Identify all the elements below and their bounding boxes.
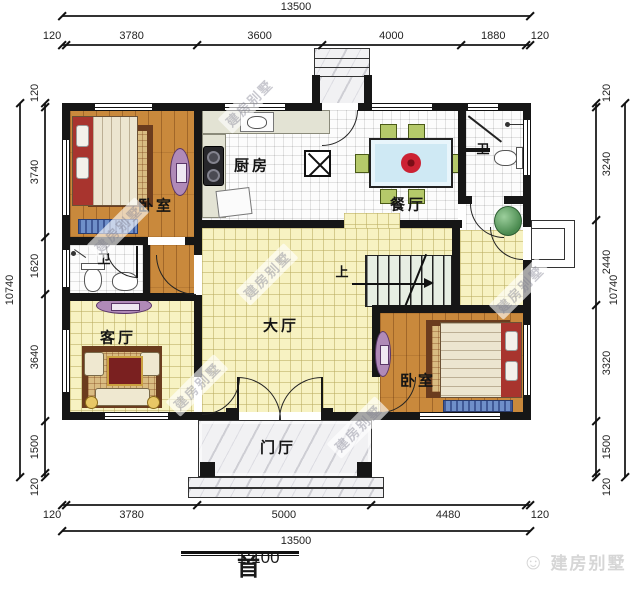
wall — [194, 295, 202, 377]
window — [523, 120, 531, 175]
coffee-table — [107, 356, 143, 386]
stove — [203, 146, 224, 186]
back-porch-step-line — [314, 58, 370, 59]
dimension-label: 120 — [29, 84, 41, 102]
dimension-label: 120 — [43, 509, 61, 521]
dimension-label: 1880 — [481, 30, 505, 42]
window — [372, 103, 432, 111]
dining-chair — [408, 124, 425, 139]
fridge — [215, 187, 252, 218]
dimension-label: 120 — [601, 478, 613, 496]
dimension-label: 10740 — [4, 275, 16, 306]
dimension-label: 3320 — [601, 351, 613, 375]
stairs-up-label: 上 — [335, 262, 348, 281]
window — [62, 250, 70, 287]
wall — [62, 103, 70, 140]
bath-l-door-leaf — [136, 246, 138, 278]
dimension-label: 3640 — [29, 345, 41, 369]
room-label-hall: 大厅 — [263, 315, 299, 336]
dimension-label: 13500 — [281, 1, 312, 13]
wall — [152, 103, 225, 111]
dimension-label: 10740 — [608, 275, 620, 306]
dimension-label: 3780 — [119, 30, 143, 42]
dimension-line — [62, 530, 530, 532]
wall — [458, 196, 472, 204]
window — [62, 330, 70, 392]
brand-logo: ☺ 建房别墅 — [522, 549, 626, 574]
dining-chair — [380, 124, 397, 139]
bedroom-br-bench — [443, 400, 513, 412]
wall — [185, 237, 194, 245]
entry-door-left-leaf — [237, 377, 239, 420]
burner — [207, 151, 220, 164]
flue-shaft — [304, 150, 331, 177]
foyer-column — [200, 462, 215, 477]
dimension-label: 5000 — [272, 509, 296, 521]
window — [420, 412, 500, 420]
room-label-living: 客厅 — [100, 327, 136, 348]
dimension-label: 13500 — [281, 535, 312, 547]
wall — [400, 220, 462, 228]
dining-chair — [355, 154, 369, 173]
wall — [523, 395, 531, 420]
sink-basin — [247, 116, 267, 129]
brand-logo-text: 建房别墅 — [550, 549, 626, 574]
title-underline — [181, 551, 299, 556]
bedroom-tl-bed — [72, 116, 138, 206]
wall — [523, 103, 531, 120]
window — [95, 103, 152, 111]
dimension-line — [19, 103, 21, 477]
floor-lamp — [85, 396, 98, 409]
window — [468, 103, 498, 111]
dimension-label: 4480 — [436, 509, 460, 521]
hall-opening-floor — [344, 213, 400, 228]
dimension-line — [62, 504, 530, 506]
dimension-tick — [526, 527, 535, 536]
dimension-label: 3240 — [601, 151, 613, 175]
pillow — [505, 361, 518, 381]
back-porch-wall — [364, 75, 372, 105]
foyer-step-2 — [188, 488, 384, 498]
floor-lamp — [147, 396, 160, 409]
room-label-bedroom-br: 卧室 — [400, 370, 436, 391]
bedroom-br-dresser — [375, 331, 391, 377]
back-porch-steps — [314, 48, 370, 77]
back-porch-landing — [320, 77, 364, 103]
sofa — [95, 388, 150, 406]
dimension-tick — [16, 473, 25, 482]
blanket — [93, 117, 137, 205]
stairs-direction-line — [352, 283, 428, 285]
wall — [452, 228, 460, 305]
dimension-label: 120 — [531, 509, 549, 521]
smiley-face-icon: ☺ — [522, 551, 544, 573]
dimension-label: 1620 — [29, 253, 41, 277]
window — [105, 412, 168, 420]
floor-plan-canvas: 卧室 卫 厨房 餐厅 卫 客厅 大厅 卧室 门厅 上 建房别墅 建房别墅 建房别… — [0, 0, 640, 590]
toilet — [494, 150, 517, 166]
dimension-line — [624, 103, 626, 477]
back-porch-step-line — [314, 67, 370, 68]
side-porch-inner — [531, 228, 565, 260]
wall — [504, 196, 531, 204]
wall — [143, 245, 150, 293]
armchair — [84, 352, 104, 376]
back-porch-wall — [312, 75, 320, 105]
dimension-label: 1500 — [29, 434, 41, 458]
window — [62, 140, 70, 215]
room-label-dining: 餐厅 — [390, 194, 426, 215]
foyer-column — [357, 462, 372, 477]
dimension-label: 3600 — [247, 30, 271, 42]
burner — [207, 169, 220, 182]
dimension-label: 120 — [601, 84, 613, 102]
wall — [202, 220, 344, 228]
dimension-line — [62, 15, 530, 17]
dimension-label: 120 — [43, 30, 61, 42]
dimension-label: 1500 — [601, 434, 613, 458]
dimension-label: 120 — [29, 478, 41, 496]
window — [523, 325, 531, 395]
pillow — [76, 157, 89, 179]
dimension-label: 3780 — [119, 509, 143, 521]
blanket — [441, 323, 501, 397]
room-label-foyer: 门厅 — [260, 437, 296, 458]
table-centerpiece — [401, 153, 421, 173]
toilet — [84, 268, 102, 292]
dimension-label: 4000 — [379, 30, 403, 42]
wall — [62, 215, 70, 250]
dimension-label: 2440 — [601, 250, 613, 274]
wall — [62, 392, 70, 420]
dimension-tick — [621, 473, 630, 482]
room-label-bath-tr: 卫 — [476, 139, 489, 158]
entry-door-right-leaf — [321, 377, 323, 420]
shower-arm — [509, 124, 523, 125]
armchair — [140, 352, 160, 376]
foyer-step-1 — [188, 477, 384, 488]
pillow — [505, 331, 518, 351]
bedroom-br-bed — [440, 322, 522, 398]
bedroom-tl-dresser — [170, 148, 190, 196]
dimension-label: 3740 — [29, 160, 41, 184]
pillow — [76, 125, 89, 147]
wall — [194, 110, 202, 255]
wall — [62, 293, 194, 301]
stairs-arrow-head — [424, 278, 434, 288]
toilet-tank — [516, 147, 523, 169]
room-label-kitchen: 厨房 — [234, 155, 270, 176]
dimension-tick — [526, 12, 535, 21]
